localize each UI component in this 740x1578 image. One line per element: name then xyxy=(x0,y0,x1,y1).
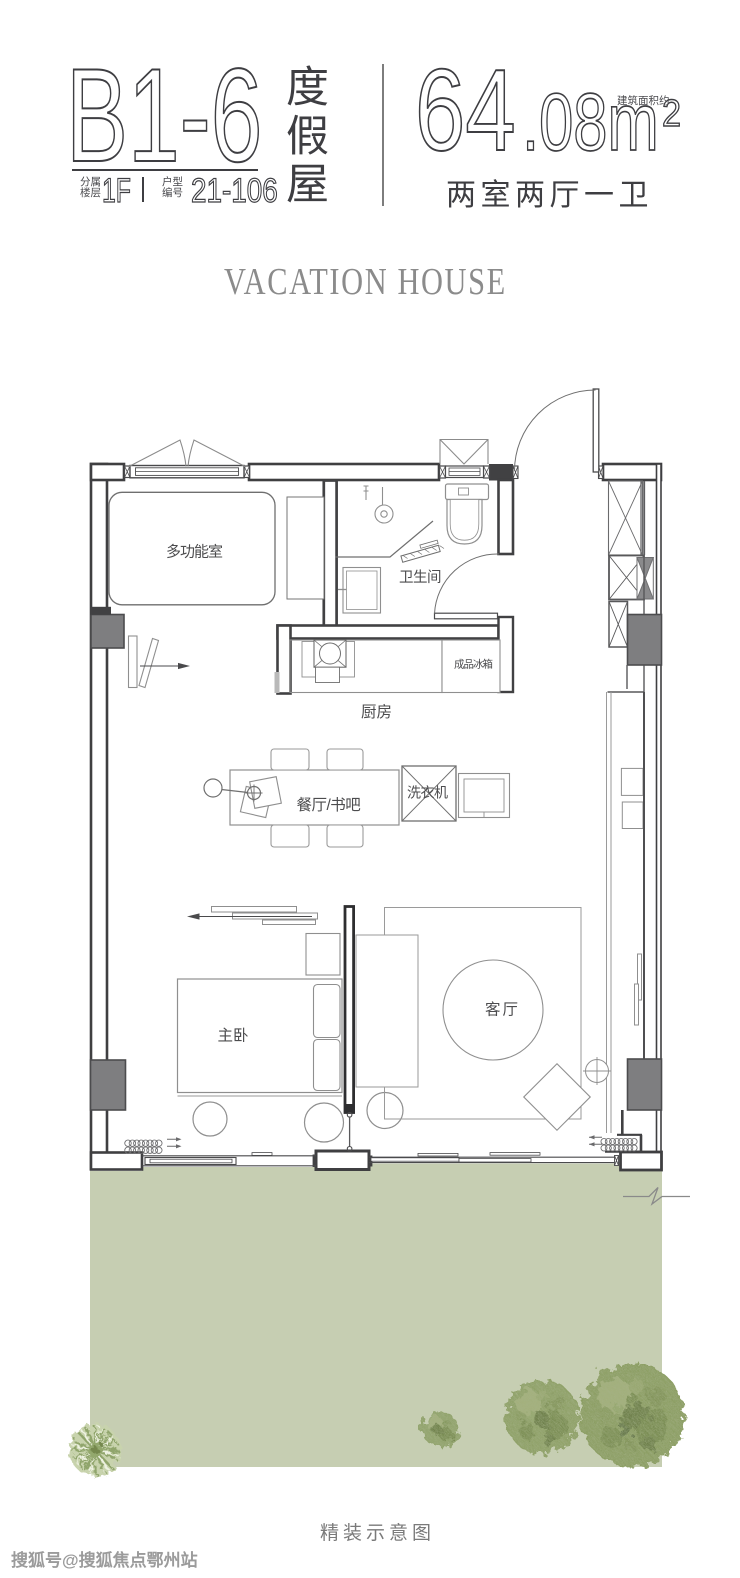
svg-text:主卧: 主卧 xyxy=(218,1027,249,1045)
svg-text:洗衣机: 洗衣机 xyxy=(407,785,448,801)
svg-text:多功能室: 多功能室 xyxy=(166,544,223,561)
svg-text:卫生间: 卫生间 xyxy=(399,569,441,586)
svg-text:厨房: 厨房 xyxy=(361,703,392,721)
svg-text:成品冰箱: 成品冰箱 xyxy=(454,658,492,671)
svg-text:客厅: 客厅 xyxy=(485,1001,520,1019)
svg-text:餐厅/书吧: 餐厅/书吧 xyxy=(297,796,361,814)
